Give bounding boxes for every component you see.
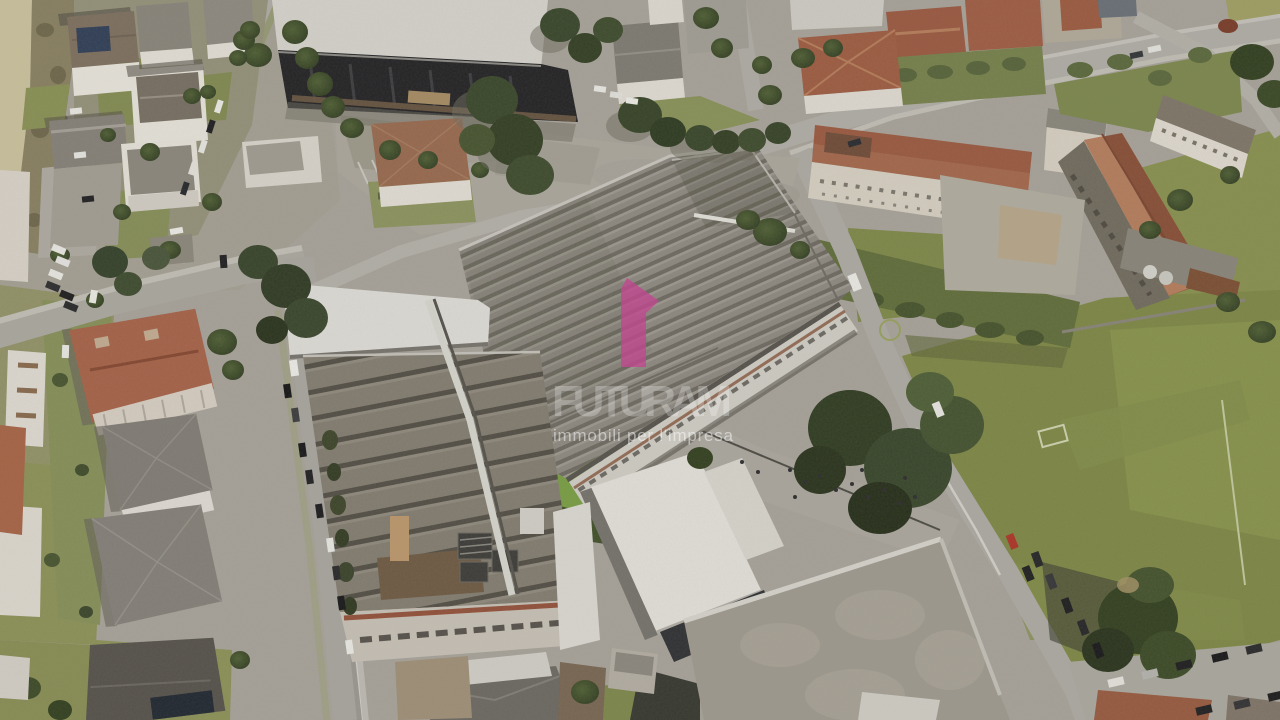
svg-text:FUTURAM: FUTURAM bbox=[552, 377, 732, 426]
svg-text:immobili per l'impresa: immobili per l'impresa bbox=[553, 426, 734, 445]
